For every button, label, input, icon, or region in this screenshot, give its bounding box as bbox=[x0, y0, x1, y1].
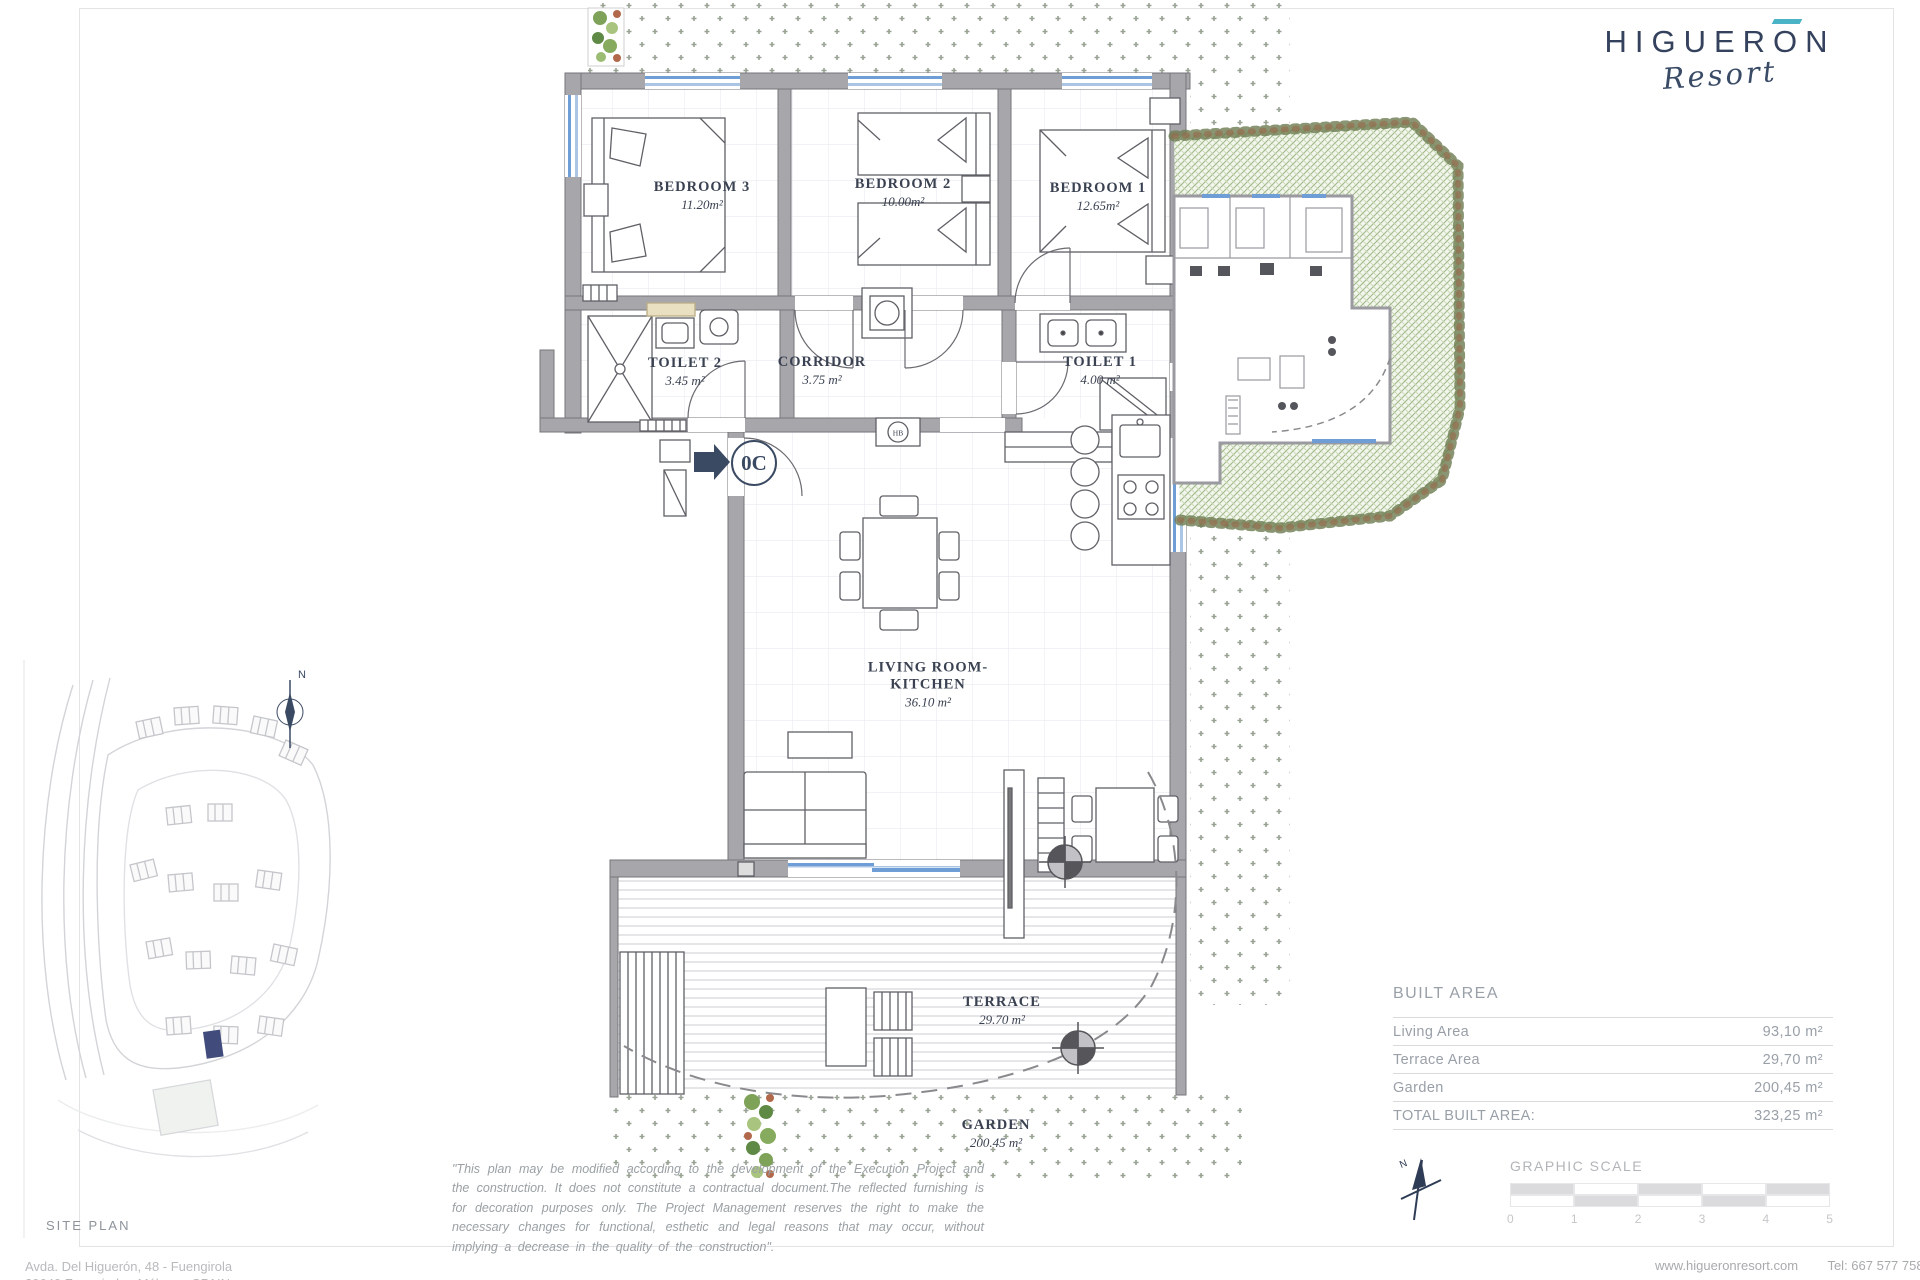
address-line-1: Avda. Del Higuerón, 48 - Fuengirola bbox=[25, 1258, 232, 1275]
disclaimer-text: "This plan may be modified according to … bbox=[452, 1160, 984, 1257]
unit-number-badge: 0C bbox=[731, 440, 777, 486]
north-compass-icon: N bbox=[277, 669, 306, 748]
room-label-bedroom2: BEDROOM 2 10.00m² bbox=[855, 176, 951, 210]
row-value: 29,70 m² bbox=[1763, 1052, 1833, 1068]
water-heater-box: HB bbox=[876, 418, 920, 446]
built-area-heading: BUILT AREA bbox=[1393, 985, 1833, 1003]
graphic-scale-label: GRAPHIC SCALE bbox=[1510, 1158, 1643, 1174]
brochure-sheet: HB BEDROOM 3 11.20m² BEDROOM 2 10.00m² B… bbox=[0, 0, 1920, 1280]
entry-arrow-icon bbox=[694, 444, 730, 480]
row-label: TOTAL BUILT AREA: bbox=[1393, 1108, 1535, 1124]
footer-address: Avda. Del Higuerón, 48 - Fuengirola 2964… bbox=[25, 1258, 232, 1280]
svg-text:N: N bbox=[1398, 1158, 1409, 1171]
row-label: Living Area bbox=[1393, 1024, 1469, 1040]
table-row: Garden 200,45 m² bbox=[1393, 1073, 1833, 1101]
plot-overview-drawing bbox=[1160, 108, 1480, 558]
room-label-bedroom1: BEDROOM 1 12.65m² bbox=[1050, 180, 1146, 214]
room-label-corridor: CORRIDOR 3.75 m² bbox=[778, 354, 867, 388]
row-value: 93,10 m² bbox=[1763, 1024, 1833, 1040]
svg-text:N: N bbox=[298, 669, 306, 681]
room-label-garden: GARDEN 200.45 m² bbox=[962, 1117, 1031, 1151]
brand-logo: HIGUERON Resort bbox=[1575, 24, 1865, 92]
room-label-terrace: TERRACE 29.70 m² bbox=[963, 994, 1041, 1028]
table-row: Terrace Area 29,70 m² bbox=[1393, 1045, 1833, 1073]
row-value: 200,45 m² bbox=[1754, 1080, 1833, 1096]
room-label-toilet1: TOILET 1 4.00 m² bbox=[1063, 354, 1137, 388]
table-row: Living Area 93,10 m² bbox=[1393, 1017, 1833, 1045]
address-line-2: 29640 Fuengirola - Málaga - SPAIN bbox=[25, 1275, 232, 1280]
row-label: Garden bbox=[1393, 1080, 1444, 1096]
site-plan-map: N bbox=[18, 660, 348, 1245]
website-link[interactable]: www.higueronresort.com bbox=[1655, 1258, 1798, 1273]
scale-bar: 01 23 45 bbox=[1510, 1183, 1830, 1226]
site-plan-label: SITE PLAN bbox=[46, 1218, 130, 1233]
room-label-bedroom3: BEDROOM 3 11.20m² bbox=[654, 179, 750, 213]
footer-contact: www.higueronresort.com Tel: 667 577 758 bbox=[1655, 1258, 1920, 1273]
svg-text:HB: HB bbox=[893, 429, 903, 438]
room-label-living: LIVING ROOM-KITCHEN 36.10 m² bbox=[848, 660, 1008, 711]
scale-ticks: 01 23 45 bbox=[1507, 1212, 1833, 1226]
row-value: 323,25 m² bbox=[1754, 1108, 1833, 1124]
north-compass-icon: N bbox=[1398, 1154, 1444, 1226]
phone-number: Tel: 667 577 758 bbox=[1827, 1258, 1920, 1273]
graphic-scale-block: N GRAPHIC SCALE 01 23 45 bbox=[1398, 1152, 1838, 1244]
row-label: Terrace Area bbox=[1393, 1052, 1480, 1068]
built-area-table: BUILT AREA Living Area 93,10 m² Terrace … bbox=[1393, 985, 1833, 1130]
table-row-total: TOTAL BUILT AREA: 323,25 m² bbox=[1393, 1101, 1833, 1130]
room-label-toilet2: TOILET 2 3.45 m² bbox=[648, 355, 722, 389]
